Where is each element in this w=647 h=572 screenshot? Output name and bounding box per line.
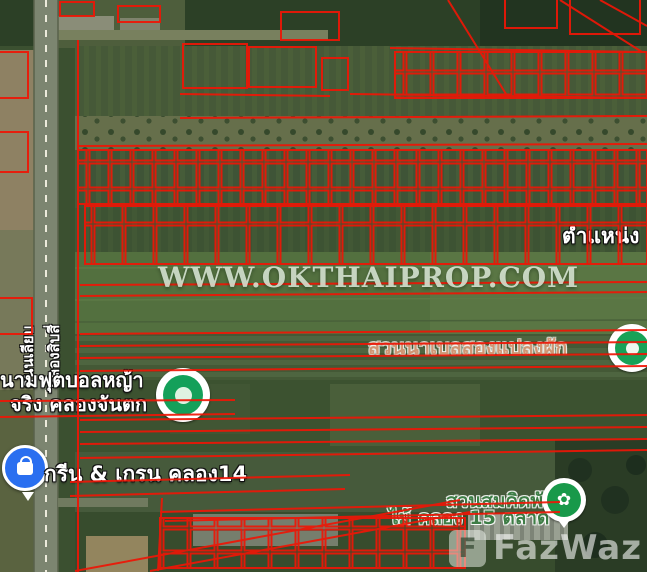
- shop-marker-icon[interactable]: [2, 445, 48, 491]
- right-edge-marker-icon[interactable]: [608, 324, 647, 372]
- marker-center-dot: [626, 342, 639, 355]
- green-ring-icon: [163, 375, 203, 415]
- shopping-bag-icon: [17, 462, 33, 475]
- green-ring-icon: [615, 331, 647, 365]
- road-name-line2: คลองสิบสี่: [42, 238, 66, 388]
- road-name-label: ถนนเลียบ คลองสิบสี่: [16, 238, 66, 388]
- satellite-map-view[interactable]: ถนนเลียบ คลองสิบสี่ ตำแหน่ง สวนนาเบลสองแ…: [0, 0, 647, 572]
- poi-layer: ถนนเลียบ คลองสิบสี่ ตำแหน่ง สวนนาเบลสองแ…: [0, 0, 647, 572]
- marker-center-dot: [175, 387, 192, 404]
- position-label: ตำแหน่ง: [562, 220, 639, 253]
- flower-icon: ✿: [547, 483, 581, 517]
- football-label-line2: จริง คลองจันตก: [10, 392, 147, 416]
- road-name-line1: ถนนเลียบ: [16, 238, 40, 388]
- poi-label-nursery-line2[interactable]: ไม้ คลอง 15 ตลาด: [389, 503, 549, 533]
- poi-label-farm[interactable]: สวนนาเบลสองแปลงผัก: [368, 331, 567, 363]
- poi-label-green-grain[interactable]: กรีน & เกรน คลอง14: [44, 458, 247, 491]
- sports-field-marker-icon[interactable]: [156, 368, 210, 422]
- poi-label-football-field[interactable]: นามฟุตบอลหญ้า จริง คลองจันตก: [0, 368, 147, 416]
- football-label-line1: นามฟุตบอลหญ้า: [0, 368, 147, 392]
- nursery-marker-icon[interactable]: ✿: [542, 478, 586, 522]
